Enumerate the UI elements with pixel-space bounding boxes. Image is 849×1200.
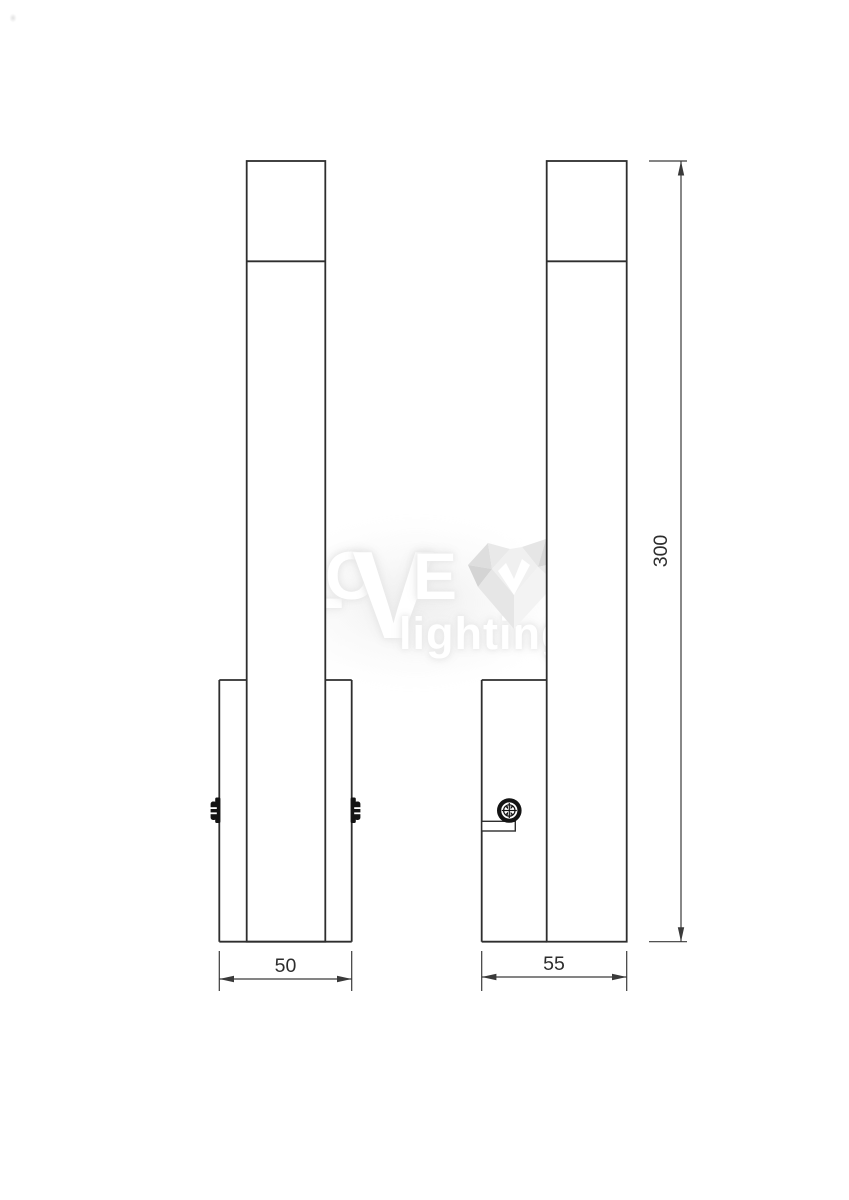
dim300-value: 300: [650, 535, 672, 568]
dimension-height: 300: [649, 161, 687, 942]
dimension-front-width: 50: [219, 951, 351, 991]
dim55-arrow-right: [612, 974, 627, 980]
side-view: [482, 161, 627, 942]
side-lamp-body: [547, 161, 627, 942]
front-view: [210, 161, 361, 942]
side-screw-head: [499, 800, 519, 820]
dim300-arrow-bottom: [678, 927, 684, 942]
dim300-arrow-top: [678, 161, 684, 176]
dim50-value: 50: [275, 955, 297, 977]
dim50-arrow-left: [219, 976, 234, 982]
dim55-arrow-left: [482, 974, 497, 980]
drawing-canvas: L O V E lighting: [0, 0, 849, 1200]
front-lamp-body: [247, 161, 326, 942]
dim55-value: 55: [543, 953, 565, 975]
dimension-side-depth: 55: [482, 951, 627, 991]
front-screw-left: [210, 798, 221, 824]
front-screw-right: [351, 798, 362, 824]
dim50-arrow-right: [337, 976, 352, 982]
technical-drawing: 50 55 300: [0, 0, 849, 1200]
